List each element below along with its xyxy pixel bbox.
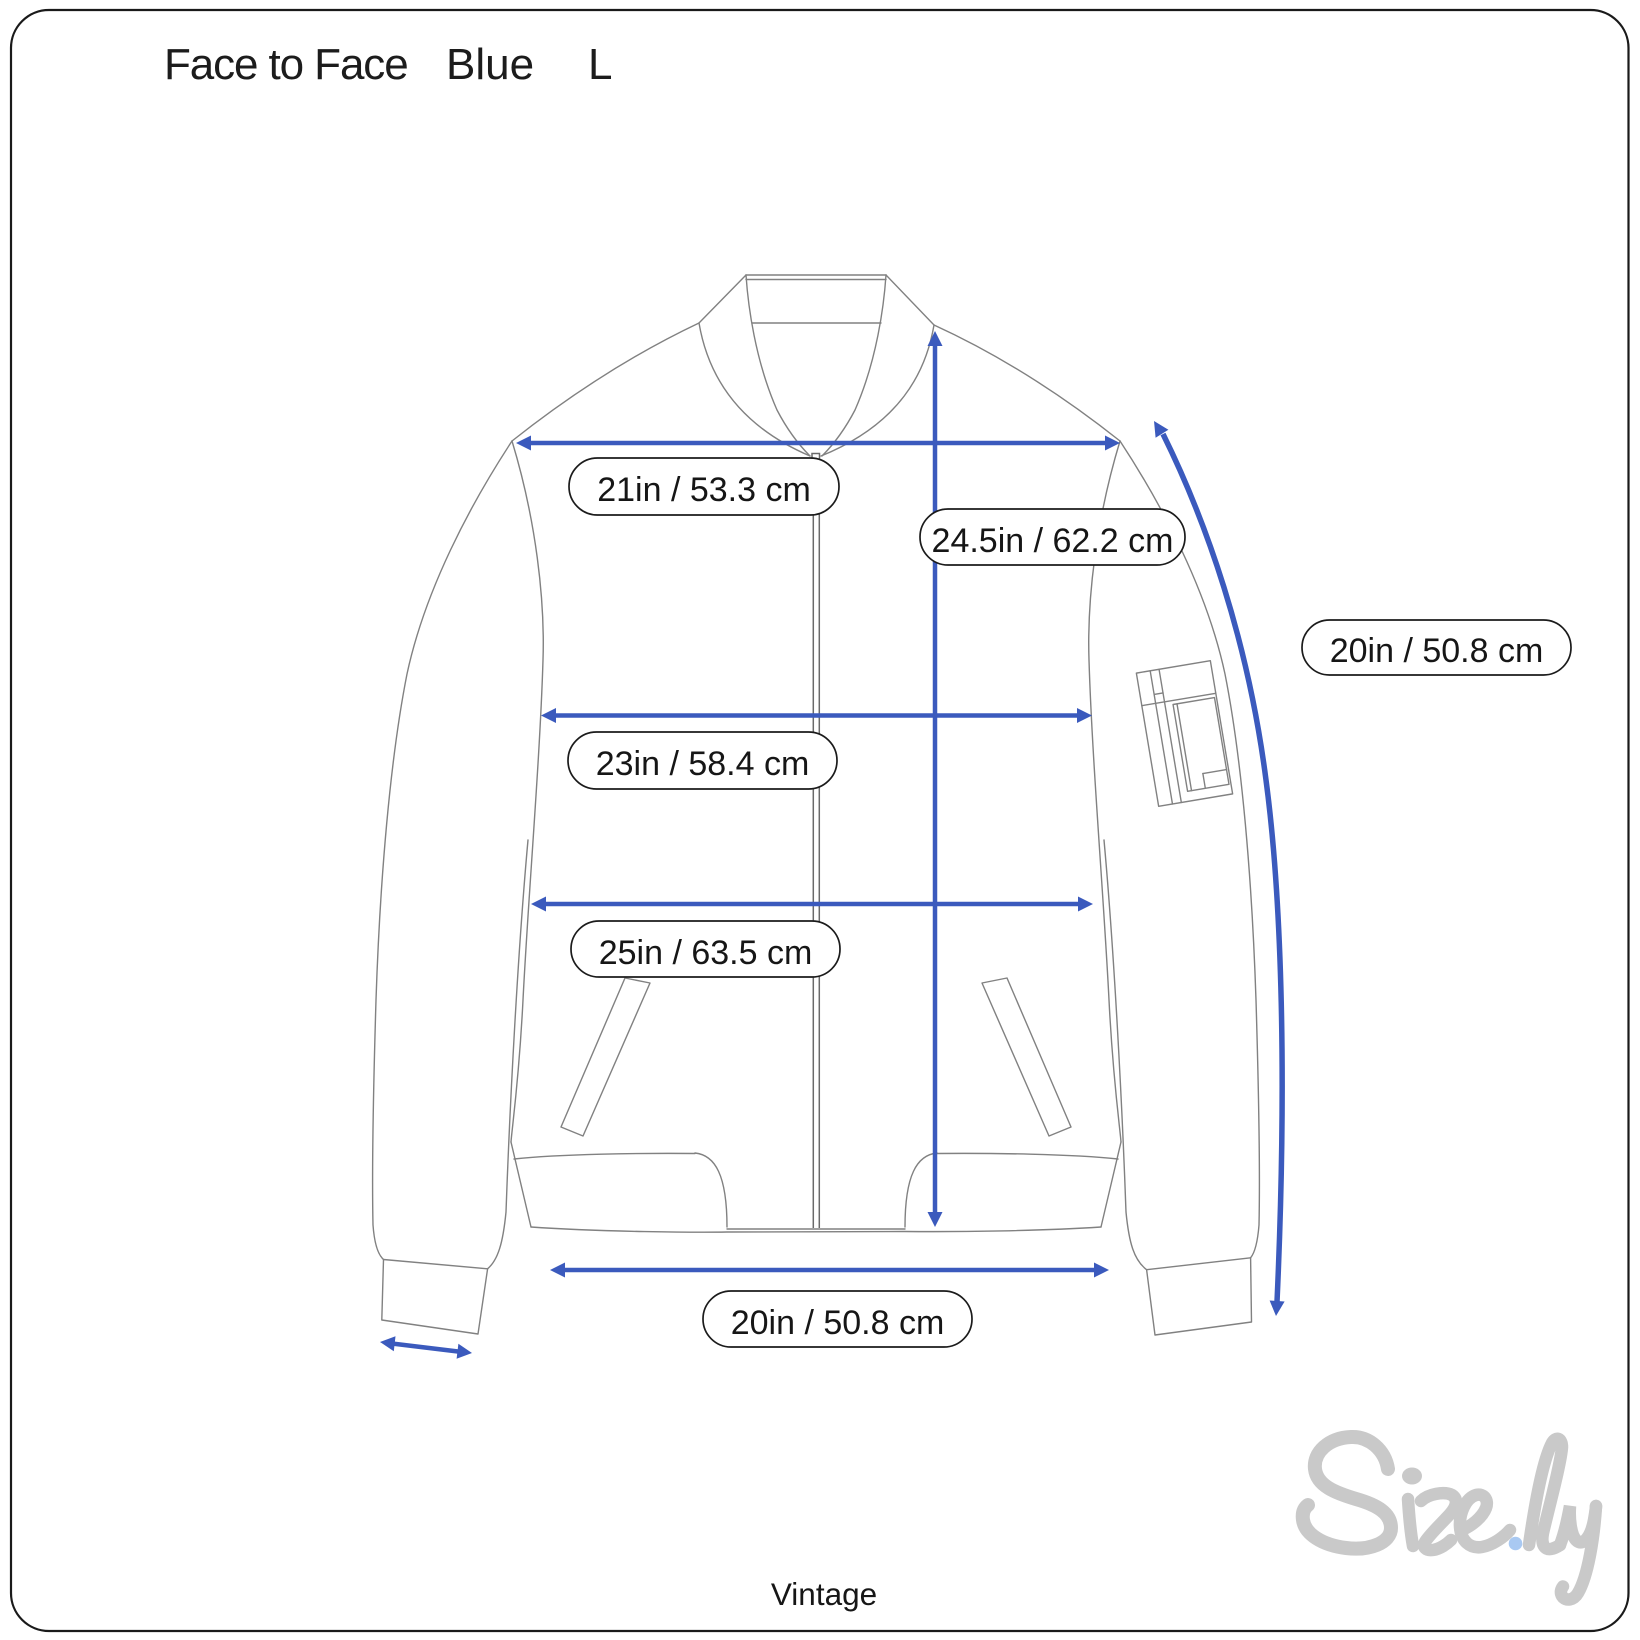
svg-text:25in / 63.5 cm: 25in / 63.5 cm [599, 934, 813, 972]
svg-text:20in / 50.8 cm: 20in / 50.8 cm [1330, 632, 1544, 670]
svg-text:24.5in / 62.2 cm: 24.5in / 62.2 cm [932, 522, 1174, 560]
svg-text:Blue: Blue [446, 40, 534, 89]
svg-text:20in / 50.8 cm: 20in / 50.8 cm [731, 1304, 945, 1342]
svg-text:Face to Face: Face to Face [164, 40, 408, 89]
svg-text:21in / 53.3 cm: 21in / 53.3 cm [597, 471, 811, 509]
svg-text:L: L [588, 40, 612, 89]
svg-text:Vintage: Vintage [771, 1576, 877, 1612]
svg-text:23in / 58.4 cm: 23in / 58.4 cm [596, 745, 810, 783]
